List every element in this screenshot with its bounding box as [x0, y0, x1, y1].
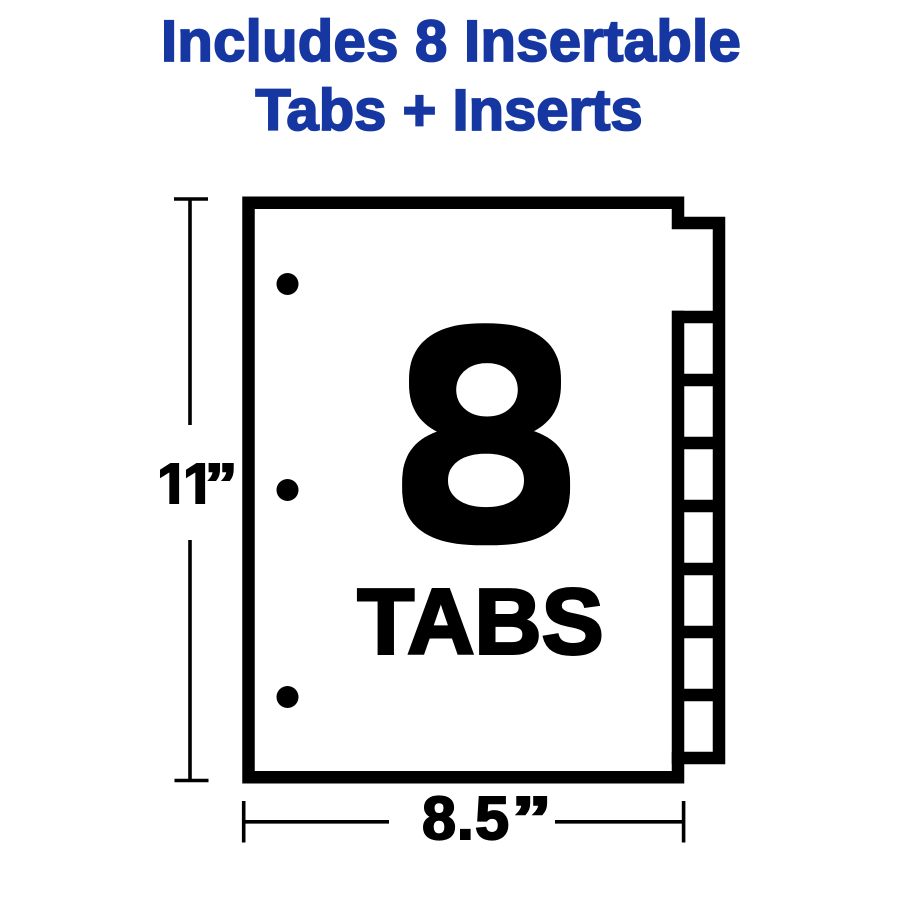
- svg-text:TABS: TABS: [357, 570, 603, 674]
- svg-text:Tabs + Inserts: Tabs + Inserts: [255, 78, 642, 143]
- svg-text:Includes 8 Insertable: Includes 8 Insertable: [161, 9, 741, 74]
